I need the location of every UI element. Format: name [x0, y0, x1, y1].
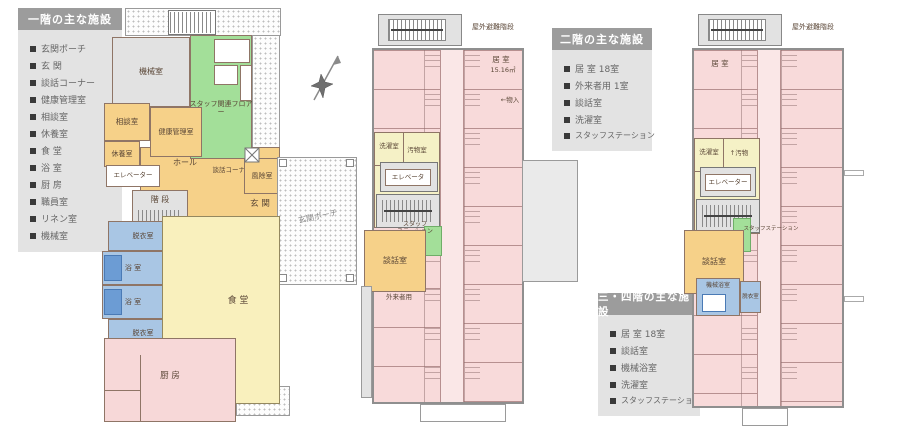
chat-room-2f: 談話室: [364, 230, 426, 292]
dining-hall-label: 食 堂: [212, 296, 264, 306]
kitchen-wall: [140, 355, 141, 422]
square-bullet-icon: [610, 365, 616, 371]
exterior-stair-treads: [170, 12, 214, 33]
room-label-3f: 居 室: [703, 60, 737, 69]
soiled-label-3f: ↑汚物: [726, 150, 752, 157]
laundry-label-2f: 洗濯室: [375, 143, 403, 150]
visitor-label-2f: 外来者用: [380, 294, 418, 301]
entrance-label: 玄 関: [238, 200, 282, 210]
room-label-2f: 居 室: [485, 56, 517, 65]
plan-floor34: 屋外避難階段 居 室 洗濯室 ↑汚物 エレベーター スタッフステーション 談話室…: [675, 0, 900, 430]
consult-room: 相談室: [104, 103, 150, 141]
stair-rail: [711, 29, 763, 31]
roof-area: [361, 286, 372, 398]
square-bullet-icon: [610, 348, 616, 354]
machine-bathtub: [702, 294, 726, 312]
staff-station-3f-label: スタッフステーション: [743, 226, 799, 232]
staff-subroom: [214, 65, 238, 85]
closet-label-2f: ←物入: [495, 97, 525, 104]
stair-rail: [704, 215, 752, 217]
windbreak-room: 風除室: [244, 158, 280, 194]
kitchen-wall: [104, 390, 140, 391]
hall-label: ホール: [165, 158, 205, 167]
soiled-label-2f: 汚物室: [403, 147, 431, 154]
outdoor-stairs-2f-label: 屋外避難階段: [466, 23, 520, 31]
north-compass-icon: [304, 48, 346, 110]
floorplan-sheet: 一階の主な施設 玄関ポーチ 玄 関 談話コーナー 健康管理室 相談室 休養室 食…: [0, 0, 900, 430]
outdoor-stairs-3f-label: 屋外避難階段: [786, 23, 840, 31]
rest-room: 休養室: [104, 141, 140, 167]
exterior-tab: [844, 296, 864, 302]
stairs-1f-label: 階 段: [136, 195, 184, 204]
plan-floor1: 機械室 スタッフ関連フロアー 相談室 健康管理室 休養室 エレベーター 階 段 …: [0, 0, 360, 430]
legend-item-label: 居 室 18室: [621, 327, 665, 340]
crossed-box-icon: [244, 147, 260, 163]
porch-column: [279, 159, 287, 167]
porch-column: [279, 274, 287, 282]
stair-rail: [384, 210, 432, 212]
health-room: 健康管理室: [150, 107, 202, 157]
corridor-2f: [440, 50, 464, 402]
exterior-paving: [252, 35, 280, 153]
machine-bath-3f-label: 機械浴室: [697, 283, 739, 290]
porch-column: [346, 159, 354, 167]
lower-roof-outline: [420, 404, 506, 422]
legend-item-label: スタッフステーション: [575, 130, 655, 141]
roof-area: [522, 160, 578, 282]
elevator-3f: エレベーター: [705, 174, 751, 191]
kitchen-label: 厨 房: [148, 372, 192, 382]
lower-roof-outline: [742, 408, 788, 426]
stair-rail: [391, 29, 443, 31]
square-bullet-icon: [610, 398, 616, 404]
dressing-room-3f: 脱衣室: [740, 281, 761, 313]
laundry-label-3f: 洗濯室: [695, 149, 723, 156]
exterior-tab: [844, 170, 864, 176]
staff-subroom: [240, 65, 252, 101]
legend-item-label: 談話室: [621, 344, 648, 357]
elevator-1f: エレベーター: [106, 165, 160, 187]
room-area-2f: 15.16㎡: [485, 67, 521, 74]
staff-subroom: [214, 39, 250, 63]
square-bullet-icon: [610, 382, 616, 388]
porch-column: [346, 274, 354, 282]
legend-item-label: 洗濯室: [621, 378, 648, 391]
plan-floor2: 屋外避難階段 居 室 15.16㎡ ←物入 洗濯室 汚物室 エレベータ スタッフ…: [355, 0, 585, 430]
bathtub: [104, 289, 122, 315]
elevator-2f: エレベータ: [385, 169, 431, 186]
square-bullet-icon: [610, 331, 616, 337]
bathtub: [104, 255, 122, 281]
bed-rows-pattern: [464, 50, 480, 402]
legend-item-label: 機械浴室: [621, 361, 657, 374]
machine-room: 機械室: [112, 37, 190, 107]
